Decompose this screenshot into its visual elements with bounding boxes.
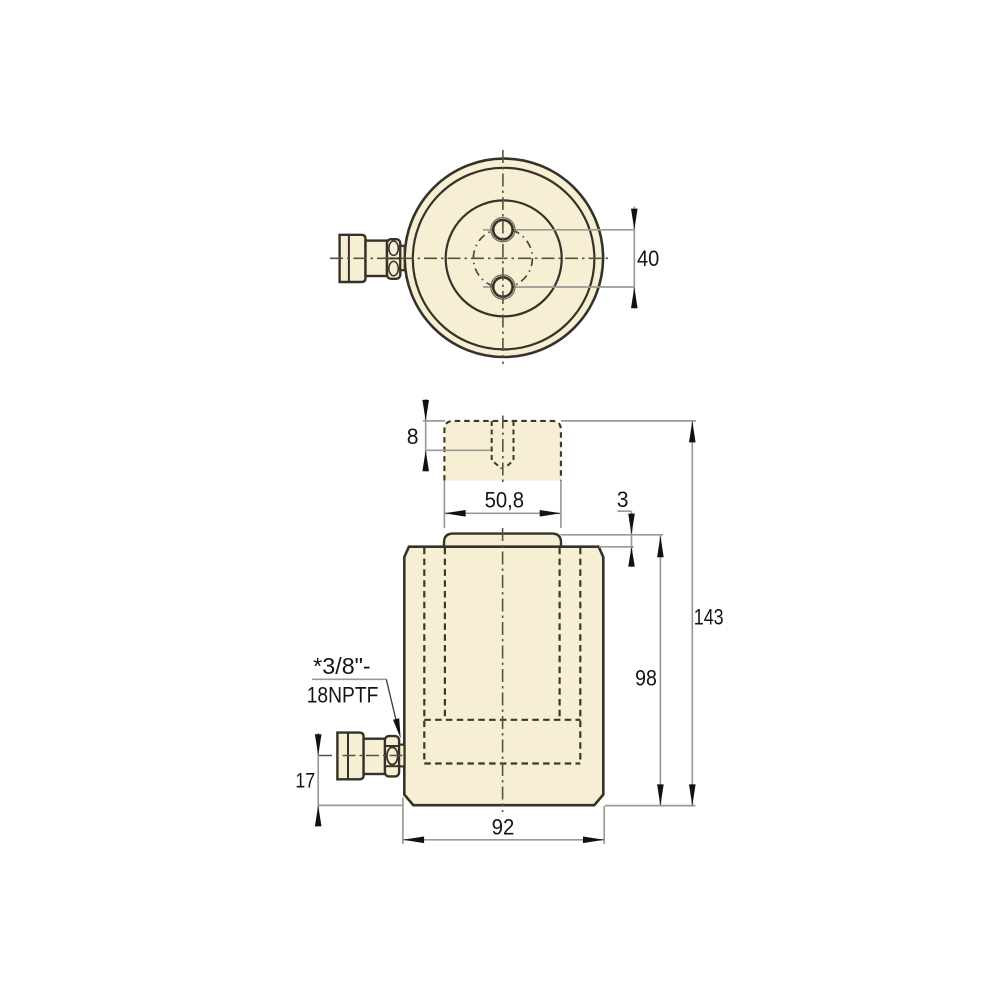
svg-text:92: 92 <box>492 815 515 840</box>
svg-text:18NPTF: 18NPTF <box>307 683 379 708</box>
svg-text:*3/8"-: *3/8"- <box>313 653 371 679</box>
svg-text:50,8: 50,8 <box>485 488 524 513</box>
svg-text:8: 8 <box>407 424 419 449</box>
svg-text:143: 143 <box>694 604 724 629</box>
svg-text:3: 3 <box>617 487 629 512</box>
svg-text:17: 17 <box>295 769 315 793</box>
svg-text:40: 40 <box>637 246 659 271</box>
svg-text:98: 98 <box>635 666 657 691</box>
